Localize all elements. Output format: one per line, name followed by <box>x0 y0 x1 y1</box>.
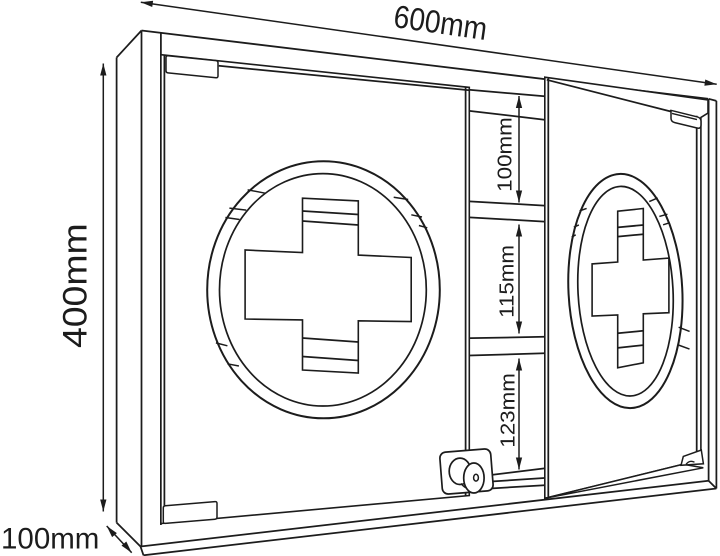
svg-text:400mm: 400mm <box>56 223 94 348</box>
svg-text:115mm: 115mm <box>497 245 519 318</box>
svg-text:100mm: 100mm <box>495 117 517 192</box>
svg-text:100mm: 100mm <box>1 523 99 556</box>
svg-text:123mm: 123mm <box>498 373 520 448</box>
